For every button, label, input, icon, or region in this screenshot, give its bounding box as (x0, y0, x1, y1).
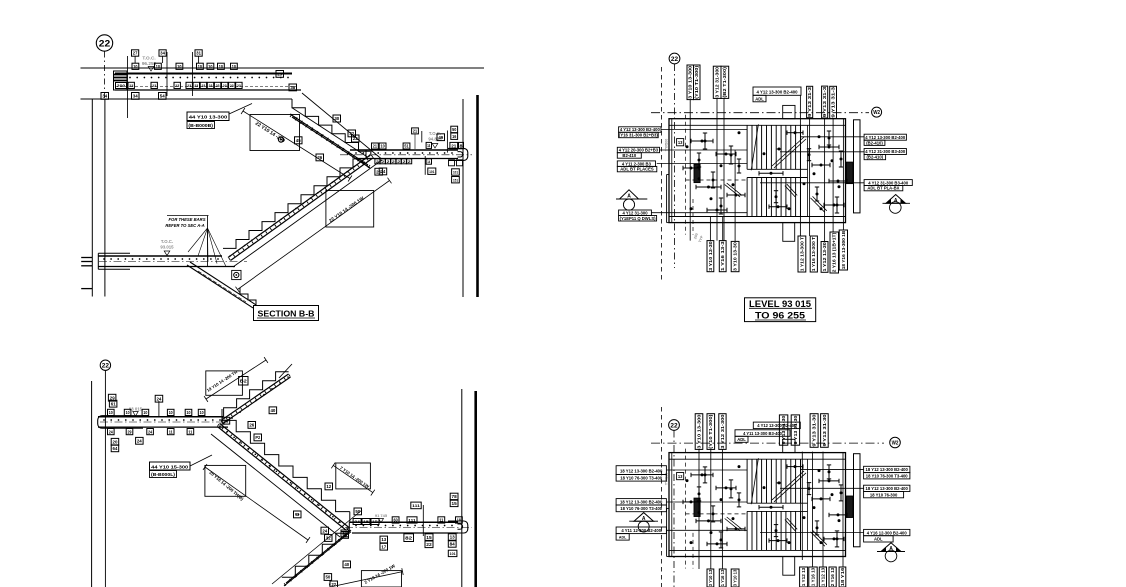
svg-text:18 Y10 76-300 T3-400: 18 Y10 76-300 T3-400 (620, 506, 663, 511)
svg-text:2: 2 (392, 160, 395, 164)
svg-text:29: 29 (277, 72, 282, 77)
svg-text:15: 15 (363, 520, 368, 524)
svg-text:23: 23 (129, 84, 133, 88)
svg-text:18 Y12 13-300 B2-400: 18 Y12 13-300 B2-400 (620, 468, 663, 473)
svg-text:(Y10 T1-300): (Y10 T1-300) (708, 414, 713, 449)
svg-text:9 Y13 31-3: 9 Y13 31-3 (822, 86, 827, 117)
svg-text:ADL BT PLA-BX: ADL BT PLA-BX (867, 186, 899, 191)
svg-text:4 Y11 12-300 B2-400: 4 Y11 12-300 B2-400 (621, 528, 661, 533)
svg-text:1 Y12 13: 1 Y12 13 (820, 567, 825, 586)
svg-text:23: 23 (194, 84, 198, 88)
svg-text:4 Y12 31-300 B3-400: 4 Y12 31-300 B3-400 (865, 149, 906, 154)
svg-text:111: 111 (412, 504, 420, 508)
svg-text:40: 40 (270, 408, 275, 413)
svg-text:18 Y12 13-300 B2-400: 18 Y12 13-300 B2-400 (866, 467, 909, 472)
svg-text:4 Y12 31-300: 4 Y12 31-300 (622, 210, 648, 215)
svg-text:34: 34 (133, 94, 138, 99)
svg-text:60: 60 (394, 518, 399, 523)
svg-text:23: 23 (230, 84, 234, 88)
svg-text:23: 23 (175, 84, 179, 88)
svg-text:54: 54 (160, 94, 165, 99)
svg-text:82: 82 (405, 535, 413, 540)
svg-text:2: 2 (408, 160, 411, 164)
svg-text:84: 84 (354, 520, 359, 524)
svg-text:23: 23 (237, 84, 241, 88)
svg-text:9 Y13 31-30: 9 Y13 31-30 (793, 415, 798, 444)
svg-text:29: 29 (110, 395, 115, 400)
svg-text:10: 10 (156, 64, 161, 69)
svg-text:(Y16 31-300 B2+B3): (Y16 31-300 B2+B3) (619, 133, 658, 138)
svg-text:9 Y13 31-30: 9 Y13 31-30 (822, 414, 827, 447)
svg-text:3 Y10 13-30: 3 Y10 13-30 (733, 242, 738, 271)
svg-text:61: 61 (111, 401, 116, 406)
svg-text:23: 23 (187, 84, 191, 88)
svg-text:23: 23 (209, 84, 213, 88)
svg-text:10: 10 (208, 64, 213, 69)
svg-text:50: 50 (325, 575, 330, 580)
svg-text:ADL: ADL (755, 96, 764, 101)
svg-text:10: 10 (381, 144, 386, 149)
svg-text:10: 10 (143, 410, 147, 415)
svg-text:ADL: ADL (619, 536, 627, 540)
svg-text:1 Y16 13: 1 Y16 13 (720, 569, 725, 586)
svg-text:26: 26 (317, 155, 322, 160)
svg-text:111: 111 (408, 519, 415, 523)
svg-text:18 Y16 13-300 1B: 18 Y16 13-300 1B (841, 230, 846, 269)
svg-text:101: 101 (429, 170, 434, 174)
svg-text:14: 14 (427, 160, 430, 164)
svg-text:51: 51 (404, 144, 409, 149)
svg-text:(B2-410): (B2-410) (867, 155, 884, 160)
svg-text:10: 10 (198, 64, 203, 69)
svg-text:24: 24 (148, 429, 152, 434)
svg-text:10: 10 (177, 64, 182, 69)
svg-text:22: 22 (671, 56, 679, 63)
svg-text:3 Y12 31-300: 3 Y12 31-300 (715, 66, 720, 97)
svg-text:15: 15 (426, 535, 432, 540)
svg-text:34: 34 (102, 94, 107, 99)
svg-text:REFER TO SEC A-A: REFER TO SEC A-A (165, 223, 204, 228)
svg-text:10: 10 (109, 410, 113, 415)
svg-text:1 Y12 13: 1 Y12 13 (801, 567, 806, 586)
svg-text:10: 10 (200, 410, 204, 415)
svg-text:4 Y12 20-300 B2+B3: 4 Y12 20-300 B2+B3 (619, 148, 659, 153)
svg-text:101: 101 (453, 171, 458, 175)
svg-text:2: 2 (397, 160, 400, 164)
svg-text:22: 22 (331, 582, 336, 587)
svg-text:23: 23 (202, 84, 206, 88)
svg-text:10: 10 (232, 64, 237, 69)
svg-text:SECTION B-B: SECTION B-B (258, 308, 315, 318)
svg-text:4 Y12 13-300 B2-400: 4 Y12 13-300 B2-400 (865, 135, 906, 140)
svg-text:9 Y13 31-30: 9 Y13 31-30 (812, 414, 817, 447)
svg-text:FOR THESE BARS: FOR THESE BARS (169, 217, 206, 222)
svg-text:P2: P2 (255, 435, 260, 440)
svg-text:18 Y10 76-300: 18 Y10 76-300 (870, 492, 898, 497)
svg-text:21: 21 (451, 143, 457, 148)
svg-text:49: 49 (438, 135, 443, 140)
svg-text:10: 10 (187, 410, 191, 415)
svg-text:101: 101 (450, 552, 456, 556)
svg-text:24: 24 (322, 528, 327, 533)
svg-text:23: 23 (223, 84, 227, 88)
svg-text:50: 50 (452, 127, 457, 132)
svg-text:64: 64 (113, 446, 118, 451)
svg-text:38: 38 (290, 85, 295, 90)
svg-text:9 Y13 31-3: 9 Y13 31-3 (807, 86, 812, 116)
svg-text:4 Y11 13-300 B3-400: 4 Y11 13-300 B3-400 (743, 431, 783, 436)
svg-text:13: 13 (450, 535, 456, 540)
svg-text:(Y10 T1-300): (Y10 T1-300) (694, 65, 699, 99)
svg-text:31: 31 (196, 51, 201, 56)
svg-text:4 Y12 31-300 B3-400: 4 Y12 31-300 B3-400 (868, 180, 909, 185)
svg-text:13: 13 (678, 140, 683, 145)
svg-text:13: 13 (381, 537, 386, 542)
svg-text:22: 22 (426, 542, 432, 547)
svg-text:24: 24 (380, 169, 385, 174)
svg-text:9: 9 (295, 512, 301, 517)
svg-text:93.015: 93.015 (160, 245, 174, 250)
svg-text:2: 2 (387, 160, 390, 164)
svg-text:40: 40 (344, 562, 349, 567)
svg-text:1 Y12 13-300 T: 1 Y12 13-300 T (799, 237, 804, 272)
svg-text:1 Y16 13-300 T: 1 Y16 13-300 T (811, 237, 816, 272)
svg-text:(B2-410): (B2-410) (866, 140, 883, 145)
svg-text:B2-410: B2-410 (622, 153, 636, 158)
svg-text:16: 16 (452, 134, 457, 139)
svg-text:B2: B2 (240, 378, 247, 383)
svg-text:17: 17 (381, 544, 386, 549)
svg-text:26: 26 (249, 423, 254, 428)
svg-text:10: 10 (133, 64, 138, 69)
svg-text:(Y1EP11 Q DWLS): (Y1EP11 Q DWLS) (620, 216, 656, 221)
svg-text:22: 22 (670, 422, 678, 429)
svg-text:13: 13 (678, 474, 683, 479)
svg-text:44 Y10 15-300: 44 Y10 15-300 (151, 464, 188, 470)
svg-text:14: 14 (427, 143, 430, 148)
svg-text:2 Y16 13: 2 Y16 13 (830, 567, 835, 586)
svg-text:27: 27 (133, 51, 138, 56)
svg-text:2 Y16 13 (1B+1T): 2 Y16 13 (1B+1T) (832, 232, 837, 272)
svg-text:11: 11 (188, 429, 192, 434)
svg-text:28: 28 (223, 418, 228, 423)
svg-text:LEVEL 93 015: LEVEL 93 015 (749, 299, 811, 309)
svg-text:20: 20 (113, 440, 118, 445)
svg-text:29: 29 (128, 429, 132, 434)
svg-text:34: 34 (160, 51, 165, 56)
svg-text:50: 50 (342, 533, 347, 538)
svg-text:78: 78 (452, 494, 458, 499)
svg-text:24: 24 (109, 429, 113, 434)
svg-text:T.O.C.: T.O.C. (142, 56, 155, 61)
svg-text:4 Y12 13-300 B2-400: 4 Y12 13-300 B2-400 (620, 127, 661, 132)
svg-text:W2: W2 (892, 441, 899, 447)
svg-text:200: 200 (665, 139, 669, 145)
svg-text:21: 21 (373, 144, 378, 149)
svg-text:W2: W2 (873, 110, 880, 116)
svg-text:32: 32 (349, 131, 354, 136)
svg-text:18 Y10 76-300 T3-400: 18 Y10 76-300 T3-400 (620, 476, 663, 481)
svg-text:44 Y10 13-300: 44 Y10 13-300 (189, 115, 228, 121)
svg-text:91 745: 91 745 (375, 513, 388, 518)
svg-text:22: 22 (102, 363, 110, 370)
svg-text:(B2 T1-300): (B2 T1-300) (722, 66, 727, 97)
svg-text:11: 11 (169, 429, 173, 434)
svg-text:45: 45 (296, 138, 301, 143)
svg-text:24: 24 (156, 396, 161, 401)
svg-text:18 Y16: 18 Y16 (840, 567, 845, 586)
svg-text:9 Y13 31-3: 9 Y13 31-3 (831, 86, 836, 117)
svg-text:18 Y12 13-300 B2-400: 18 Y12 13-300 B2-400 (866, 486, 909, 491)
svg-text:84: 84 (450, 542, 456, 547)
svg-text:3 Y12 31-300: 3 Y12 31-300 (720, 414, 725, 449)
svg-text:ADL BT PLACES: ADL BT PLACES (620, 167, 654, 172)
svg-text:TO 96 255: TO 96 255 (755, 311, 805, 321)
svg-text:10: 10 (219, 64, 224, 69)
svg-text:3 Y10 13: 3 Y10 13 (733, 569, 738, 586)
svg-text:151: 151 (453, 178, 458, 182)
svg-text:200: 200 (117, 84, 126, 88)
svg-text:ADL: ADL (737, 437, 746, 442)
svg-text:4 Y16 12-300 B2-400: 4 Y16 12-300 B2-400 (867, 530, 908, 535)
svg-text:1 Y12 13-30: 1 Y12 13-30 (822, 242, 827, 272)
svg-text:1 Y16 13: 1 Y16 13 (810, 567, 815, 586)
svg-text:1 Y16 13-3: 1 Y16 13-3 (720, 241, 725, 271)
svg-text:15: 15 (452, 501, 458, 506)
svg-text:3 Y10 13-300: 3 Y10 13-300 (688, 65, 693, 99)
svg-text:8: 8 (460, 143, 464, 148)
svg-text:18 Y10 76-300 T3-400: 18 Y10 76-300 T3-400 (866, 474, 909, 479)
svg-text:24: 24 (137, 439, 142, 444)
svg-text:3 Y10 13-30: 3 Y10 13-30 (708, 241, 713, 271)
svg-text:10: 10 (169, 410, 173, 415)
svg-text:21: 21 (413, 129, 418, 134)
svg-text:4 Y12 13-300 B2-400: 4 Y12 13-300 B2-400 (756, 89, 798, 94)
svg-text:18: 18 (457, 518, 462, 523)
svg-text:10: 10 (126, 410, 130, 415)
svg-text:11: 11 (439, 518, 444, 523)
svg-text:T.O.C.: T.O.C. (161, 239, 173, 244)
svg-text:(B-B000L): (B-B000L) (151, 472, 176, 477)
svg-text:3 Y10 13: 3 Y10 13 (708, 569, 713, 586)
svg-text:22: 22 (99, 38, 111, 49)
svg-text:1B: 1B (372, 520, 378, 524)
svg-text:23: 23 (216, 84, 220, 88)
svg-text:2: 2 (402, 160, 405, 164)
svg-text:3 Y10 13-300: 3 Y10 13-300 (696, 414, 701, 449)
svg-text:30: 30 (334, 116, 339, 121)
svg-text:ADL: ADL (874, 537, 883, 542)
svg-text:4 Y11 2-300 B3: 4 Y11 2-300 B3 (622, 161, 652, 166)
svg-text:(B-B000B): (B-B000B) (188, 123, 213, 128)
svg-text:18 Y12 13-300 B2-400: 18 Y12 13-300 B2-400 (620, 500, 663, 505)
svg-text:12: 12 (326, 484, 331, 489)
svg-text:4 Y12 13-300 B2-400: 4 Y12 13-300 B2-400 (757, 423, 797, 428)
svg-text:23: 23 (152, 84, 156, 88)
